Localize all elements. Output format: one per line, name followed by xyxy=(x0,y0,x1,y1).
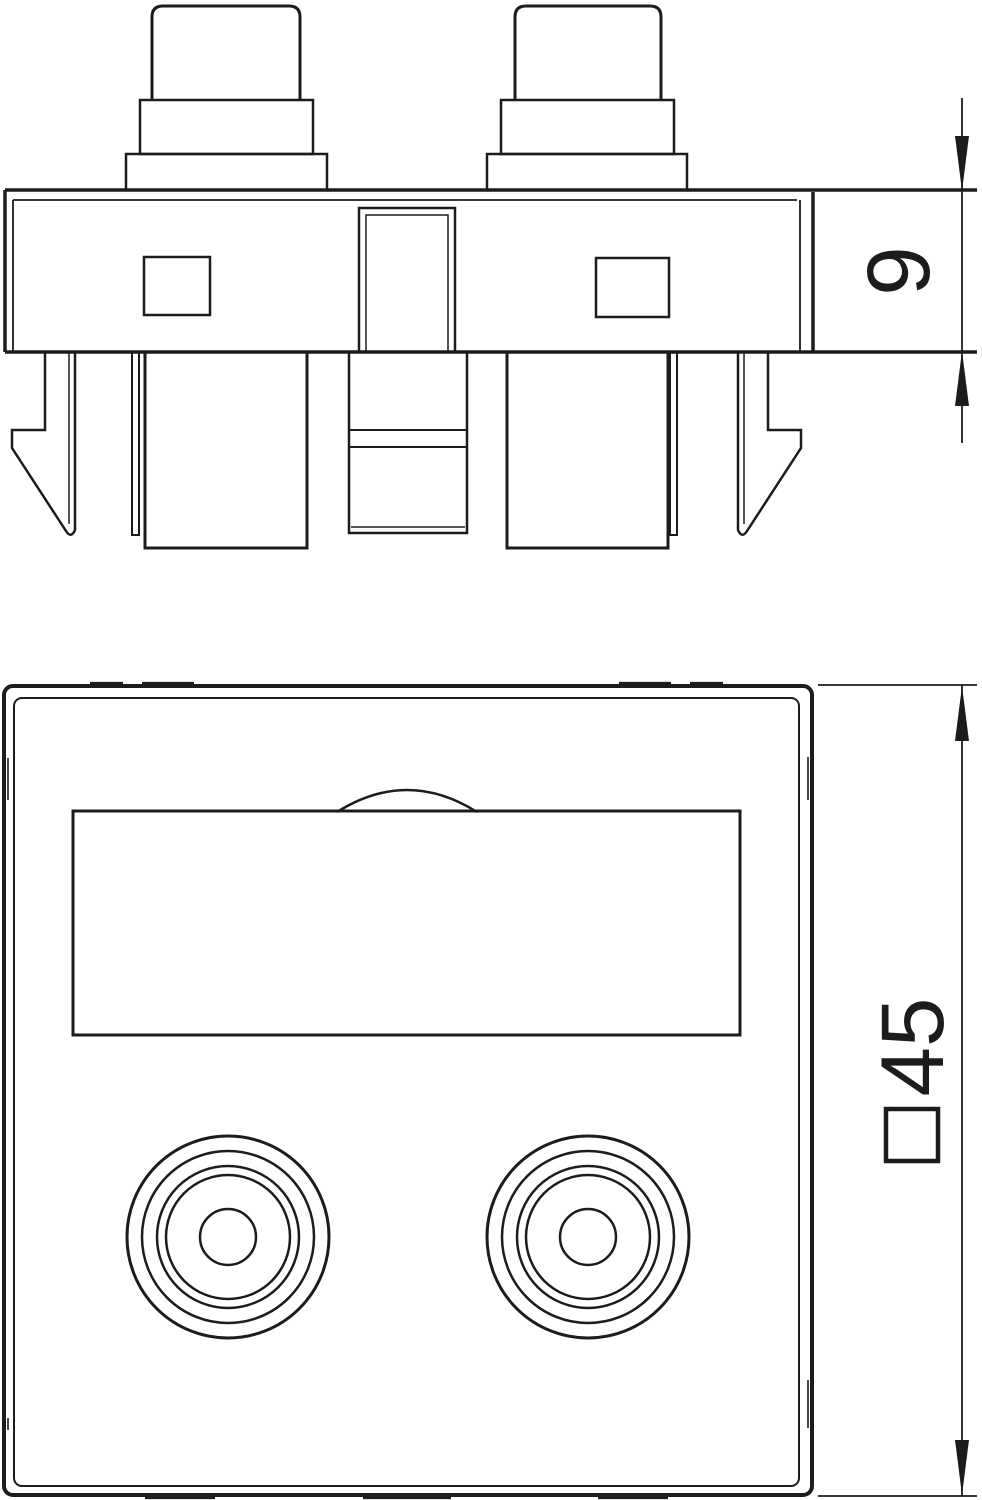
body-square-opening-right xyxy=(596,258,669,317)
socket-left-ring-2 xyxy=(142,1151,314,1323)
center-latch-slot-outer xyxy=(359,208,455,352)
dim9-label: 9 xyxy=(848,246,948,296)
dim45-label: 45 xyxy=(862,998,962,1097)
side-view xyxy=(5,6,977,548)
plug-left xyxy=(126,6,327,190)
socket-right-ring-2 xyxy=(502,1151,674,1323)
claw-left xyxy=(12,352,75,535)
square-symbol xyxy=(886,1109,938,1161)
plate-edge-notches xyxy=(8,683,808,1498)
label-field-window xyxy=(73,811,740,1035)
socket-left-pin xyxy=(200,1209,256,1265)
plug-right-base xyxy=(487,154,687,190)
label-field-bump xyxy=(337,790,477,812)
socket-right xyxy=(487,1136,689,1338)
spring-strip-right xyxy=(670,352,677,535)
module-body xyxy=(5,190,977,352)
leg-right xyxy=(507,352,668,548)
plug-left-mid xyxy=(140,100,313,154)
dim45-arrow-up xyxy=(955,686,969,741)
front-view xyxy=(4,683,812,1498)
technical-drawing-page: 9 xyxy=(0,0,982,1500)
drawing-svg: 9 xyxy=(0,0,982,1500)
plate-outer-border xyxy=(4,686,812,1495)
center-latch-slot-inner xyxy=(366,215,448,352)
socket-left-ring-4 xyxy=(166,1175,290,1299)
body-square-opening-left xyxy=(144,257,210,315)
dim9-arrow-up xyxy=(955,351,969,406)
socket-left xyxy=(127,1136,329,1338)
dimension-module-height: 9 xyxy=(848,98,969,443)
dim9-arrow-down xyxy=(955,136,969,191)
plug-right-mid xyxy=(501,100,674,154)
socket-left-ring-3 xyxy=(157,1166,299,1308)
spring-strip-left xyxy=(132,352,139,535)
socket-right-pin xyxy=(560,1209,616,1265)
dimension-plate-size: 45 xyxy=(818,685,977,1496)
plate-inner-border xyxy=(14,698,799,1486)
plug-right-tip xyxy=(515,6,661,100)
plug-right xyxy=(487,6,687,190)
leg-left xyxy=(145,352,307,548)
plug-left-tip xyxy=(152,6,300,100)
leg-center xyxy=(349,352,467,533)
socket-right-ring-3 xyxy=(517,1166,659,1308)
fixing-legs xyxy=(12,352,801,548)
socket-right-ring-4 xyxy=(526,1175,650,1299)
plug-left-base xyxy=(126,154,327,190)
dim45-arrow-down xyxy=(955,1440,969,1495)
claw-right xyxy=(738,352,801,535)
